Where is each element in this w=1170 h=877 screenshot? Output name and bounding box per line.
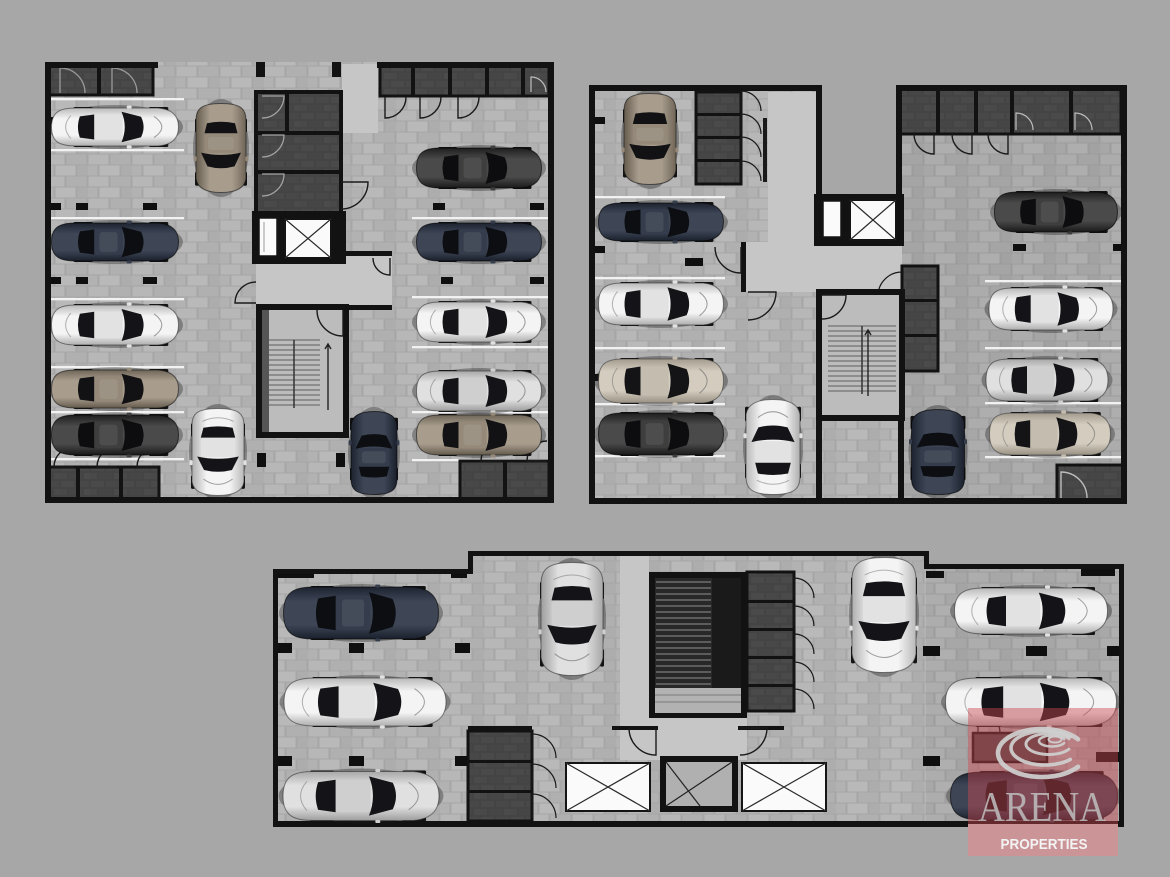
- svg-text:PROPERTIES: PROPERTIES: [1001, 836, 1088, 853]
- svg-text:ARENA: ARENA: [978, 785, 1107, 831]
